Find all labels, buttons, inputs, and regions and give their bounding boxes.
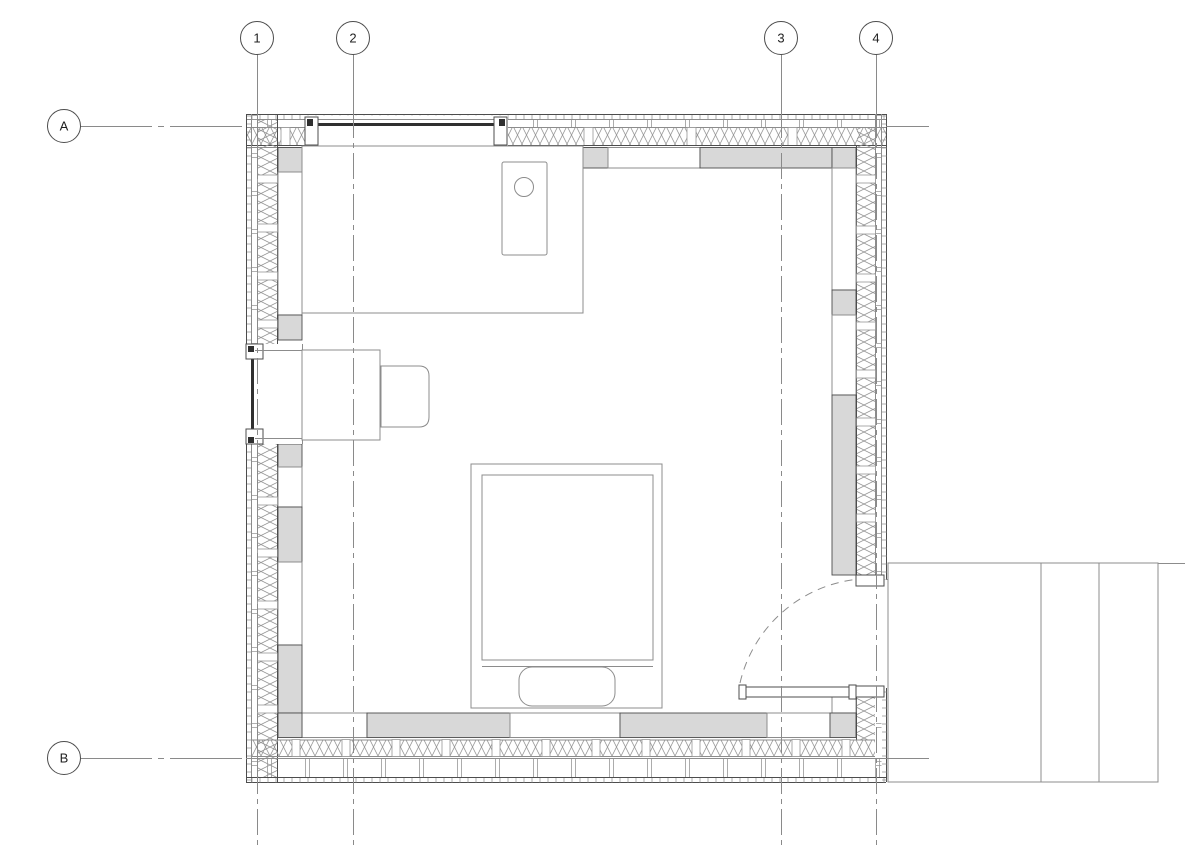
west-stud	[258, 272, 278, 280]
east-stud	[857, 274, 876, 282]
east-stud	[857, 514, 876, 522]
south-stud	[792, 740, 800, 757]
west-lining-gray	[278, 315, 302, 340]
sink-unit	[502, 162, 547, 255]
floor-plan-drawing: 1 2 3 4 A B	[0, 0, 1200, 857]
south-lining-gray	[367, 713, 510, 738]
south-stud	[742, 740, 750, 757]
south-cladding-ticks	[246, 778, 886, 783]
west-lining-gray	[278, 645, 302, 713]
grid-label-1: 1	[253, 31, 260, 46]
window-frame-top-detail	[248, 346, 254, 352]
window-frame-bottom-detail	[248, 437, 254, 443]
east-lining-white	[832, 315, 856, 395]
grid-label-4: 4	[872, 31, 879, 46]
south-lining-white	[767, 713, 830, 738]
wall-south	[246, 713, 886, 783]
south-stud	[292, 740, 300, 757]
west-lining-gray	[278, 444, 302, 467]
west-lining-white	[278, 467, 302, 507]
door-jamb-bottom	[856, 686, 884, 697]
door-leaf-end-cap	[849, 685, 856, 699]
south-stud	[842, 740, 850, 757]
grid-label-B: B	[60, 751, 69, 766]
west-stud	[258, 320, 278, 328]
floor-plan-canvas: 1 2 3 4 A B	[0, 0, 1200, 857]
east-stud	[857, 226, 876, 234]
east-stud	[857, 466, 876, 474]
west-stud	[258, 705, 278, 713]
south-batten-band	[246, 759, 886, 777]
east-cladding-ticks	[882, 114, 887, 580]
west-stud	[258, 601, 278, 609]
west-stud	[258, 653, 278, 661]
north-stud	[281, 128, 290, 146]
east-stud	[857, 418, 876, 426]
wall-east	[832, 114, 887, 782]
north-stud	[584, 128, 593, 146]
west-lining-white	[278, 172, 302, 315]
south-lining-white	[510, 713, 620, 738]
east-lining-gray	[832, 395, 856, 575]
south-lining-gray	[620, 713, 767, 738]
grid-label-2: 2	[349, 31, 356, 46]
south-stud	[442, 740, 450, 757]
bed-pillow	[519, 667, 615, 706]
south-stud	[692, 740, 700, 757]
east-stud	[857, 322, 876, 330]
east-lining-gray	[832, 290, 856, 315]
door-jamb-top	[856, 575, 884, 586]
north-lining-gray	[700, 148, 832, 169]
east-lining-white	[832, 168, 856, 290]
door-leaf-end-cap	[739, 685, 746, 699]
grid-label-3: 3	[777, 31, 784, 46]
grid-label-A: A	[60, 119, 69, 134]
south-lining-white	[302, 713, 367, 738]
west-lining-gray	[278, 507, 302, 562]
west-stud	[258, 224, 278, 232]
desk	[302, 350, 380, 440]
wall-west	[247, 114, 303, 782]
window-north	[305, 116, 508, 146]
east-stud	[857, 175, 876, 183]
south-stud	[642, 740, 650, 757]
north-stud	[687, 128, 696, 146]
south-stud	[392, 740, 400, 757]
east-batten-band	[876, 114, 882, 580]
west-lining-gray	[278, 148, 302, 173]
east-insulation	[857, 128, 875, 577]
north-lining-gray	[583, 148, 608, 169]
west-insulation	[258, 120, 277, 777]
south-stud	[492, 740, 500, 757]
south-stud	[342, 740, 350, 757]
south-stud	[542, 740, 550, 757]
north-stud	[788, 128, 797, 146]
west-batten-band	[252, 114, 257, 782]
furniture	[302, 146, 662, 708]
door-leaf-interior	[739, 687, 856, 697]
deck-outline	[888, 563, 1158, 782]
window-frame-right-detail	[499, 119, 505, 126]
west-cladding-ticks	[247, 114, 252, 782]
west-stud	[258, 549, 278, 557]
north-lining-corner	[832, 148, 856, 169]
east-stud	[857, 370, 876, 378]
north-lining-white	[608, 148, 700, 169]
window-frame-left-detail	[307, 119, 313, 126]
south-lining-corner-west	[278, 713, 302, 738]
south-stud	[592, 740, 600, 757]
west-stud	[258, 175, 278, 183]
bed-mattress	[482, 475, 653, 660]
south-lining-corner	[830, 713, 856, 738]
west-lining-white	[278, 562, 302, 645]
chair	[381, 366, 429, 427]
window-west	[243, 344, 303, 444]
west-stud	[258, 497, 278, 505]
exterior-deck	[888, 563, 1185, 782]
